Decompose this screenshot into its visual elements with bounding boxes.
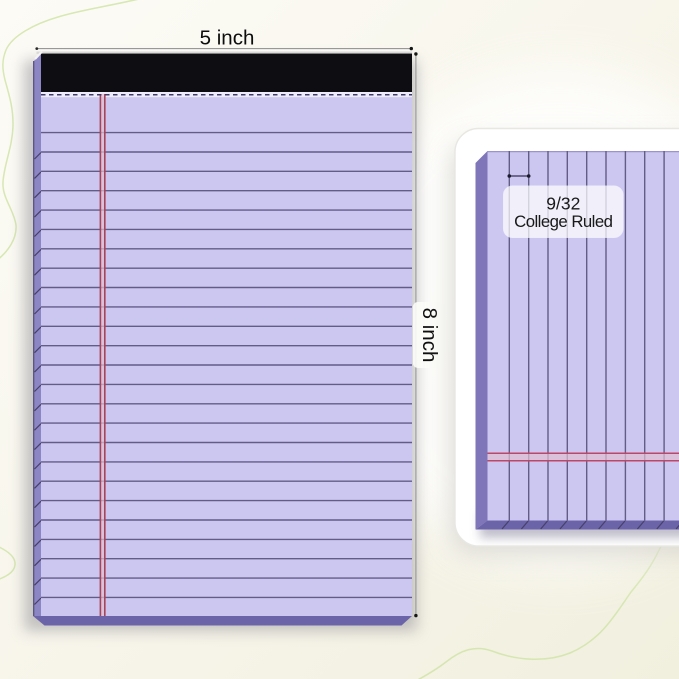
svg-text:College Ruled: College Ruled [514,212,612,231]
svg-text:8 inch: 8 inch [418,308,441,363]
svg-text:5 inch: 5 inch [200,27,255,50]
svg-text:9/32: 9/32 [546,194,580,214]
